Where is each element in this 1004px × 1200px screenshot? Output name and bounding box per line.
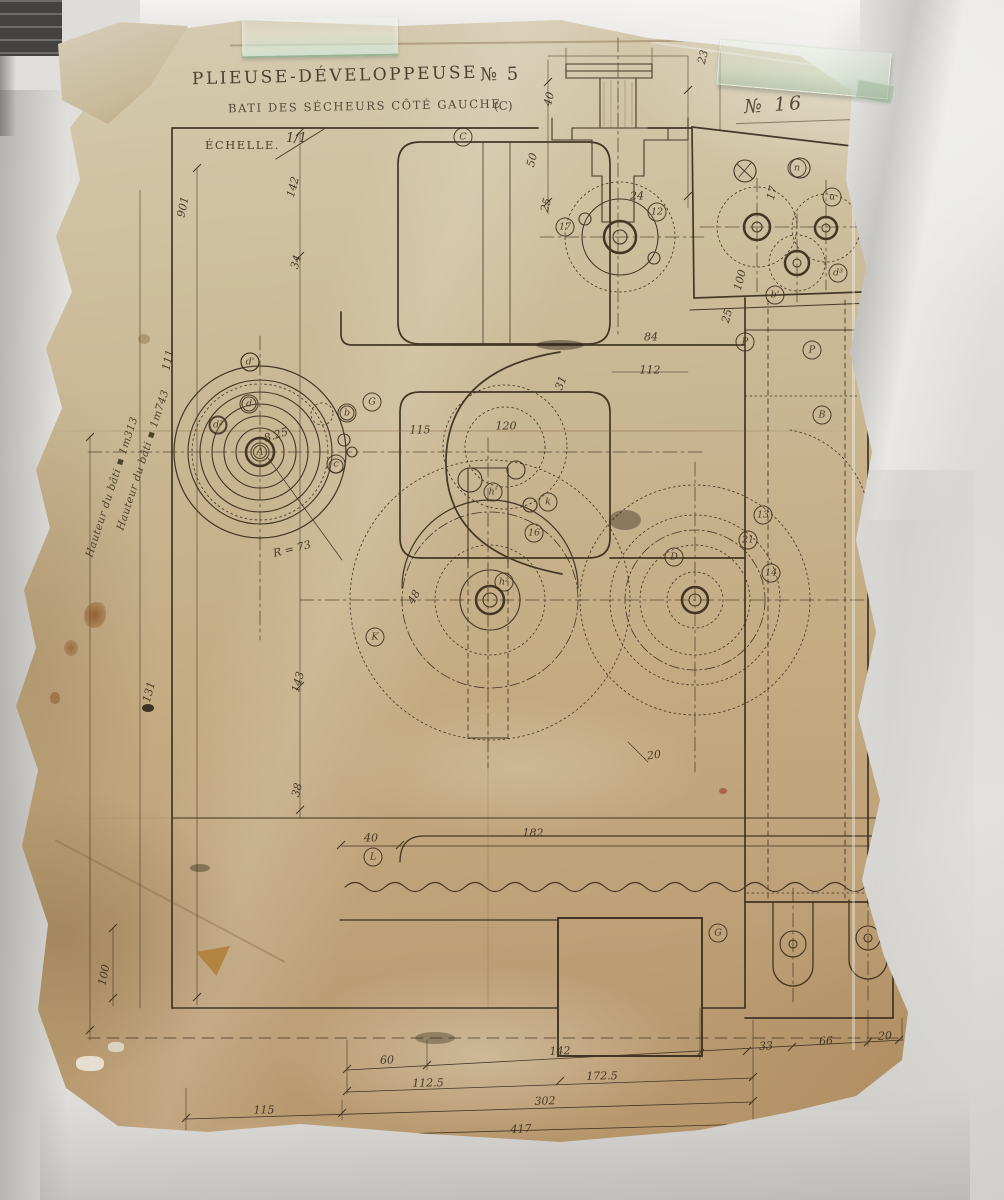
handwritten-note: Hauteur du bâti ▪ 1m313 (84, 415, 141, 559)
part-label: B (813, 406, 832, 425)
part-label: d³ (829, 264, 848, 283)
paper-crease (487, 560, 489, 1010)
ink-drawing-svg (0, 0, 1004, 1200)
part-label: 16 (525, 524, 544, 543)
part-label: u (823, 188, 842, 207)
dimension-label: 34 (288, 254, 304, 271)
dimension-label: 172.5 (586, 1069, 618, 1083)
dimension-label: 142 (284, 175, 302, 199)
dimension-label: 115 (410, 424, 431, 437)
scale-label: ÉCHELLE. (205, 138, 280, 152)
dimension-label: 120 (496, 420, 517, 433)
paper-crease (30, 430, 860, 432)
dimension-label: 25 (538, 197, 554, 214)
dimension-labels-layer: 901142341118.25R = 731151201124814313138… (0, 0, 1004, 1200)
part-label: C (454, 128, 473, 147)
part-label: K (366, 628, 385, 647)
part-label: D (665, 548, 684, 567)
dimension-label: 417 (510, 1122, 531, 1136)
paper-crease (40, 817, 900, 819)
dimension-label: 33 (759, 1039, 774, 1053)
dimension-label: 182 (523, 827, 544, 840)
dimension-label: 48 (405, 588, 423, 607)
dimension-label: 20 (646, 748, 662, 763)
dimension-label: 60 (380, 1053, 394, 1066)
sheet-number: № 16 (743, 92, 805, 118)
part-label: d (240, 395, 259, 414)
subtitle-reference: (C) (494, 99, 513, 113)
dimension-label: 40 (364, 832, 378, 845)
part-label: d² (209, 416, 228, 435)
dimension-label: 142 (549, 1044, 570, 1058)
handwritten-note: Hauteur du bâti ▪ 1m743 (115, 388, 172, 532)
part-label: 21 (739, 531, 758, 550)
part-label: k (539, 493, 558, 512)
dimension-label: R = 73 (272, 538, 313, 560)
dimension-label: 100 (95, 963, 112, 986)
part-label: 17 (556, 218, 575, 237)
dimension-label: 38 (289, 782, 305, 799)
part-label: c (327, 455, 346, 474)
dimension-label: 302 (534, 1094, 555, 1108)
rust-stain (50, 692, 60, 704)
dimension-label: 23 (695, 49, 711, 66)
scale-value: 1/1 (286, 131, 307, 146)
sheet-number-underline (736, 119, 858, 124)
part-label: d' (241, 353, 260, 372)
machine-number: № 5 (480, 64, 521, 86)
part-label: P (803, 341, 822, 360)
part-label: A (251, 443, 270, 462)
drawing-sheet: PLIEUSE-DÉVELOPPEUSE № 5 BATI DES SÉCHEU… (0, 0, 1004, 1200)
dimension-label: 131 (140, 680, 158, 704)
paper-crease-highlight (651, 41, 889, 76)
dimension-label: 25 (719, 308, 735, 325)
dimension-label: 20 (878, 1029, 893, 1043)
part-label: G (709, 924, 728, 943)
rust-stain (84, 602, 106, 628)
handwritten-notes-layer: Hauteur du bâti ▪ 1m313Hauteur du bâti ▪… (0, 0, 1004, 1200)
dimension-label: 143 (289, 670, 307, 694)
dimension-label: 100 (731, 268, 749, 292)
dimension-label: 17 (764, 185, 780, 202)
torn-paper-speck (108, 1042, 124, 1052)
dimension-label: 50 (524, 152, 540, 169)
part-label: b (338, 404, 357, 423)
part-label: h² (495, 573, 514, 592)
tan-stain (196, 946, 230, 976)
part-label: 12 (648, 203, 667, 222)
part-label: P (736, 333, 755, 352)
paper-crease (55, 839, 286, 963)
dimension-label: 31 (552, 374, 569, 392)
paper-crease-highlight (852, 110, 855, 1050)
background-dark-corner (0, 0, 62, 56)
tape-strip-end (855, 79, 896, 105)
torn-paper-speck (76, 1056, 104, 1071)
dimension-label: 66 (819, 1034, 834, 1048)
dimension-label: 8.25 (262, 425, 289, 445)
dimension-label: 115 (253, 1103, 274, 1116)
drawing-subtitle: BATI DES SÉCHEURS CÔTÉ GAUCHE (228, 97, 501, 116)
dimension-label: 24 (630, 190, 644, 203)
dimension-label: 901 (174, 195, 191, 218)
part-label: h' (484, 483, 503, 502)
part-label: n (788, 159, 807, 178)
dimension-label: 111 (159, 348, 176, 371)
part-label: G (363, 393, 382, 412)
part-label: b' (766, 286, 785, 305)
part-labels-layer: ACGd'd²dbcKLh'k16h²1217132114DPPBnud³b'G (0, 0, 1004, 1200)
dimension-label: 40 (541, 91, 557, 108)
part-label: 14 (762, 564, 781, 583)
background-edge-shadow (0, 56, 16, 136)
drawing-title: PLIEUSE-DÉVELOPPEUSE (192, 63, 478, 89)
dimension-label: 112 (640, 364, 661, 377)
small-stain (138, 334, 150, 344)
part-label: L (364, 848, 383, 867)
rust-stain (64, 640, 78, 656)
dimension-label: 84 (644, 331, 658, 344)
paper-edge-fold-line (230, 39, 710, 46)
dimension-label: 112.5 (412, 1076, 444, 1090)
part-label: 13 (754, 506, 773, 525)
